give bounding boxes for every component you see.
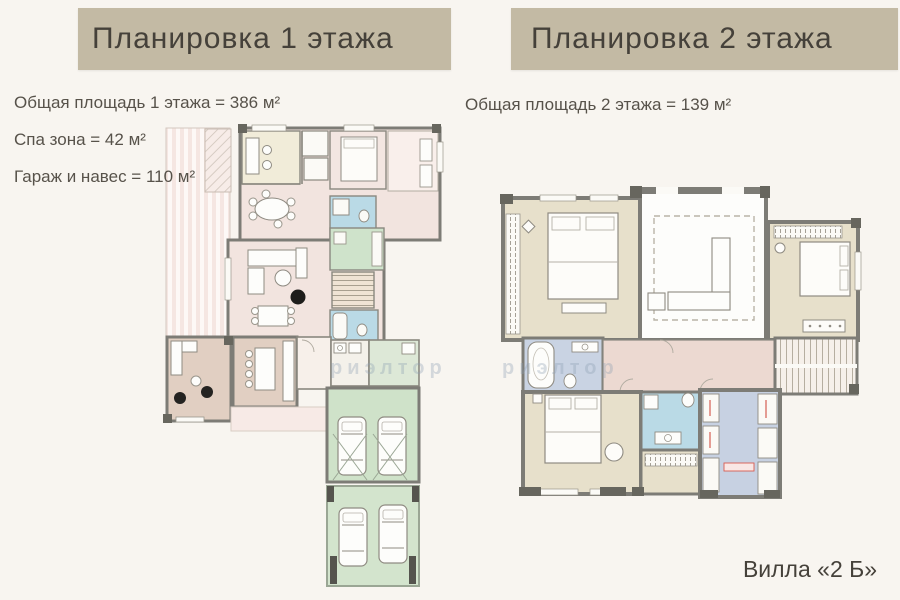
floor2-stats: Общая площадь 2 этажа = 139 м² (465, 86, 731, 123)
room-bedroom-3 (523, 392, 641, 495)
floor1-stats: Общая площадь 1 этажа = 386 м² Спа зона … (14, 84, 280, 195)
room-bedroom-master (503, 195, 640, 340)
wardrobe-strip (506, 214, 520, 334)
chair-icon (174, 392, 186, 404)
room-study (167, 337, 231, 422)
car-icon (379, 505, 407, 563)
stairs-floor2 (775, 338, 857, 394)
side-terrace (388, 131, 438, 191)
bathtub-icon (528, 342, 554, 388)
floor-plan-2 (500, 186, 861, 498)
chair-icon (201, 386, 213, 398)
page: Планировка 1 этажа Планировка 2 этажа Об… (0, 0, 900, 600)
bed-icon (341, 137, 377, 181)
room-bathroom-tub (523, 338, 603, 392)
floor2-title: Планировка 2 этажа (531, 22, 833, 56)
room-bedroom-2 (768, 222, 861, 340)
room-void-living (640, 187, 766, 340)
floor2-total-area: Общая площадь 2 этажа = 139 м² (465, 86, 731, 123)
floor1-garage-area: Гараж и навес = 110 м² (14, 158, 280, 195)
room-wc (302, 131, 328, 156)
floor2-title-banner: Планировка 2 этажа (511, 8, 898, 70)
room-bedroom-guest (330, 131, 386, 189)
room-wardrobe (700, 390, 780, 497)
entry-hall (297, 337, 331, 389)
room-mudroom (369, 340, 419, 386)
room-bathroom-3 (641, 392, 701, 450)
corridor (603, 340, 775, 392)
floor1-total-area: Общая площадь 1 этажа = 386 м² (14, 84, 280, 121)
villa-label: Вилла «2 Б» (735, 556, 885, 583)
room-garage (327, 388, 419, 482)
terrace-lower (231, 407, 329, 431)
room-utility (331, 340, 369, 386)
armchair-icon (605, 443, 623, 461)
floor1-spa-area: Спа зона = 42 м² (14, 121, 280, 158)
room-spa (330, 228, 384, 270)
bed-icon (545, 395, 601, 463)
car-icon (339, 508, 367, 566)
floor1-title-banner: Планировка 1 этажа (78, 8, 451, 70)
floor1-title: Планировка 1 этажа (92, 22, 394, 56)
room-kitchen (233, 337, 297, 407)
sofa-icon (248, 250, 296, 266)
red-label (724, 463, 754, 471)
stairs-floor1 (332, 272, 374, 308)
room-bath-small (304, 158, 328, 180)
piano-icon (291, 290, 306, 305)
carport (327, 486, 419, 586)
room-closet (641, 450, 701, 494)
main-block-middle (228, 228, 384, 344)
bed-icon (548, 213, 618, 299)
room-bathroom-2 (330, 310, 378, 342)
bed-icon (800, 242, 850, 296)
kitchen-island-icon (255, 348, 275, 390)
